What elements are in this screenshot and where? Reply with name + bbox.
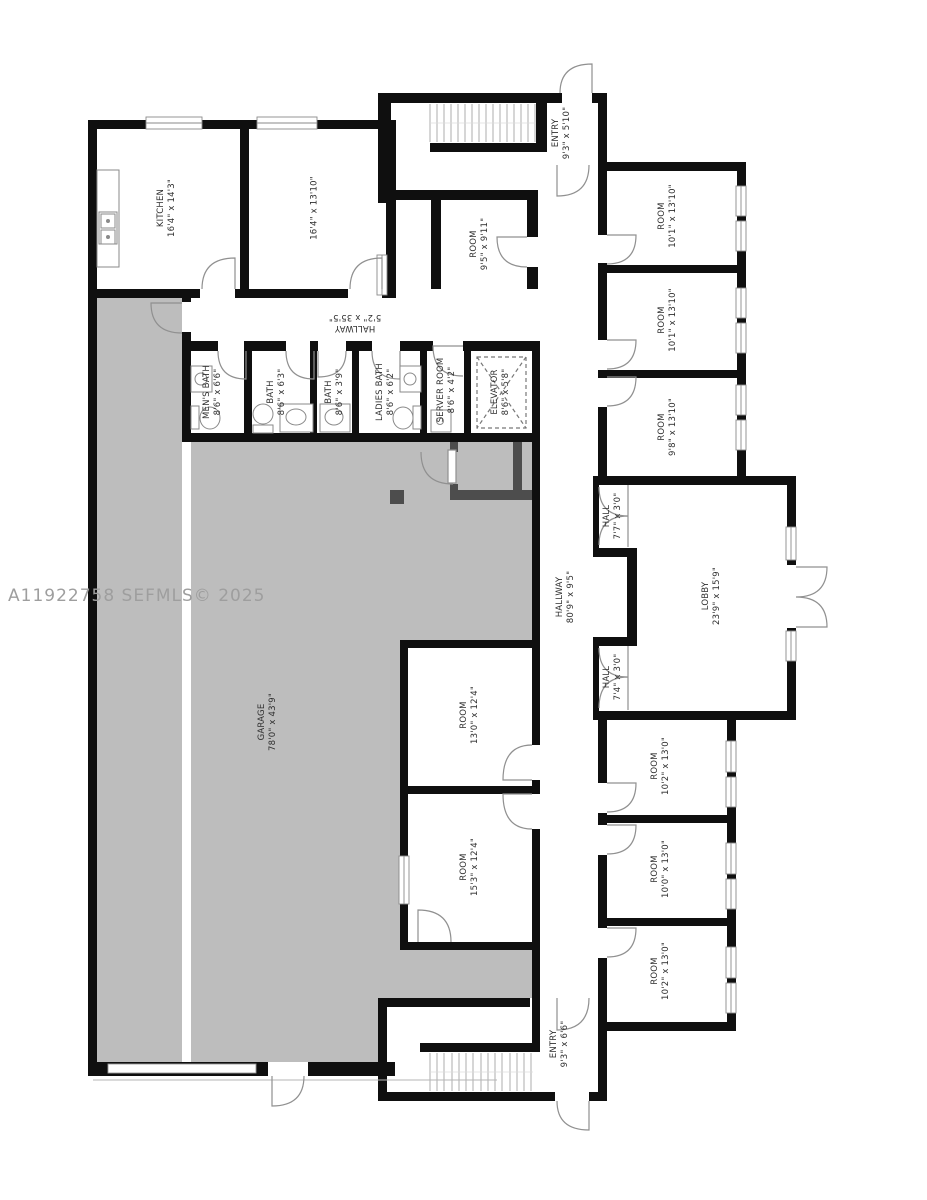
wall-segment <box>536 93 547 152</box>
label-kitchen: KITCHEN16'4" x 14'3" <box>156 179 178 237</box>
mls-watermark: A11922758 SEFMLS© 2025 <box>8 586 265 606</box>
wall-segment <box>532 829 540 1052</box>
wall-segment <box>464 341 471 442</box>
label-room-top-2: 16'4" x 13'10" <box>309 176 320 240</box>
wall-segment <box>378 998 387 1101</box>
sink <box>400 366 421 392</box>
label-mens-bath: MEN'S BATH8'6" x 6'6" <box>202 365 224 419</box>
wall-segment <box>593 485 599 550</box>
wall-segment <box>527 200 538 237</box>
wall-segment <box>378 1092 555 1101</box>
wall-segment <box>598 918 736 926</box>
wall-segment <box>727 711 736 1031</box>
wall-segment <box>598 171 607 235</box>
label-room-ne-3: ROOM9'8" x 13'10" <box>657 398 679 456</box>
wall-segment <box>737 162 746 484</box>
label-hall-bottom: HALL7'4" x 3'0" <box>602 654 624 701</box>
wall-segment <box>431 200 441 289</box>
wall-segment <box>378 93 562 103</box>
column <box>390 490 404 504</box>
wall-segment <box>420 341 427 442</box>
partition <box>452 490 540 500</box>
floor-plan: KITCHEN16'4" x 14'3" 16'4" x 13'10" ENTR… <box>0 0 927 1200</box>
label-room-ne-2: ROOM10'1" x 13'10" <box>657 288 679 352</box>
wall-segment <box>787 476 796 565</box>
wall-segment <box>88 1062 395 1076</box>
label-bath-1: BATH8'6" x 6'3" <box>266 369 288 416</box>
wall-segment <box>598 265 746 273</box>
wall-segment <box>598 370 746 378</box>
wall-segment <box>593 637 637 646</box>
wall-segment <box>400 786 540 794</box>
wall-segment <box>463 341 540 351</box>
wall-segment <box>598 263 607 340</box>
wall-segment <box>598 815 736 823</box>
wall-segment <box>310 341 317 442</box>
wall-segment <box>400 942 540 950</box>
wall-segment <box>532 341 540 745</box>
wall-segment <box>386 203 396 298</box>
wall-segment <box>182 433 540 442</box>
wall-segment <box>182 332 191 341</box>
label-room-mid-2: ROOM15'3" x 12'4" <box>459 838 481 896</box>
label-entry-top: ENTRY9'3" x 5'10" <box>551 107 573 159</box>
label-room-ne-1: ROOM10'1" x 13'10" <box>657 184 679 248</box>
wall-segment <box>388 190 538 200</box>
wall-segment <box>378 93 391 203</box>
wall-segment <box>400 640 408 950</box>
toilet <box>191 406 199 429</box>
wall-segment <box>235 289 348 298</box>
wall-segment <box>598 720 607 783</box>
wall-segment <box>589 1092 607 1101</box>
wall-segment <box>182 298 191 302</box>
label-lobby: LOBBY23'9" x 15'9" <box>701 567 723 625</box>
label-server-room: SERVER ROOM8'6" x 4'2" <box>436 358 458 423</box>
wall-segment <box>593 548 637 557</box>
kitchen-sink <box>99 212 117 244</box>
wall-segment <box>346 341 372 351</box>
wall-segment <box>244 341 252 442</box>
wall-segment <box>593 646 599 711</box>
wall-segment <box>246 341 286 351</box>
wall-segment <box>593 476 796 485</box>
label-hallway-top: HALLWAY5'2" x 35'5" <box>329 311 381 333</box>
garage-floor <box>97 298 182 1064</box>
door-opening <box>268 1062 308 1076</box>
label-room-se-3: ROOM10'2" x 13'0" <box>650 942 672 1000</box>
label-room-se-1: ROOM10'2" x 13'0" <box>650 737 672 795</box>
label-room-9-5: ROOM9'5" x 9'11" <box>469 218 491 270</box>
label-ladies-bath: LADIES BATH8'6" x 6'2" <box>375 363 397 421</box>
garage-floor <box>191 442 378 1064</box>
wall-segment <box>182 341 191 442</box>
wall-segment <box>593 711 796 720</box>
wall-segment <box>352 341 359 442</box>
partition <box>513 440 522 490</box>
kitchen-counter <box>97 170 119 267</box>
label-entry-bottom: ENTRY9'3" x 6'6" <box>549 1021 571 1068</box>
label-hallway-main: HALLWAY80'9" x 9'5" <box>555 571 577 623</box>
wall-segment <box>382 289 396 298</box>
wall-segment <box>240 120 249 298</box>
label-hall-top: HALL7'7" x 3'0" <box>602 493 624 540</box>
label-room-mid-1: ROOM13'0" x 12'4" <box>459 686 481 744</box>
label-garage: GARAGE78'0" x 43'9" <box>257 693 279 751</box>
wall-segment <box>527 267 538 289</box>
wall-segment <box>598 1022 736 1031</box>
wall-segment <box>430 143 537 152</box>
label-room-se-2: ROOM10'0" x 13'0" <box>650 840 672 898</box>
label-elevator: ELEVATOR8'6" x 5'8" <box>490 369 512 416</box>
wall-segment <box>420 1043 533 1052</box>
wall-segment <box>598 162 745 171</box>
wall-segment <box>627 557 637 637</box>
wall-segment <box>598 93 607 162</box>
wall-segment <box>598 407 607 476</box>
wall-segment <box>400 341 433 351</box>
wall-segment <box>88 289 200 298</box>
label-bath-2: BATH8'6" x 3'9" <box>324 369 346 416</box>
wall-segment <box>400 640 540 648</box>
wall-segment <box>787 628 796 720</box>
wall-segment <box>378 998 530 1007</box>
